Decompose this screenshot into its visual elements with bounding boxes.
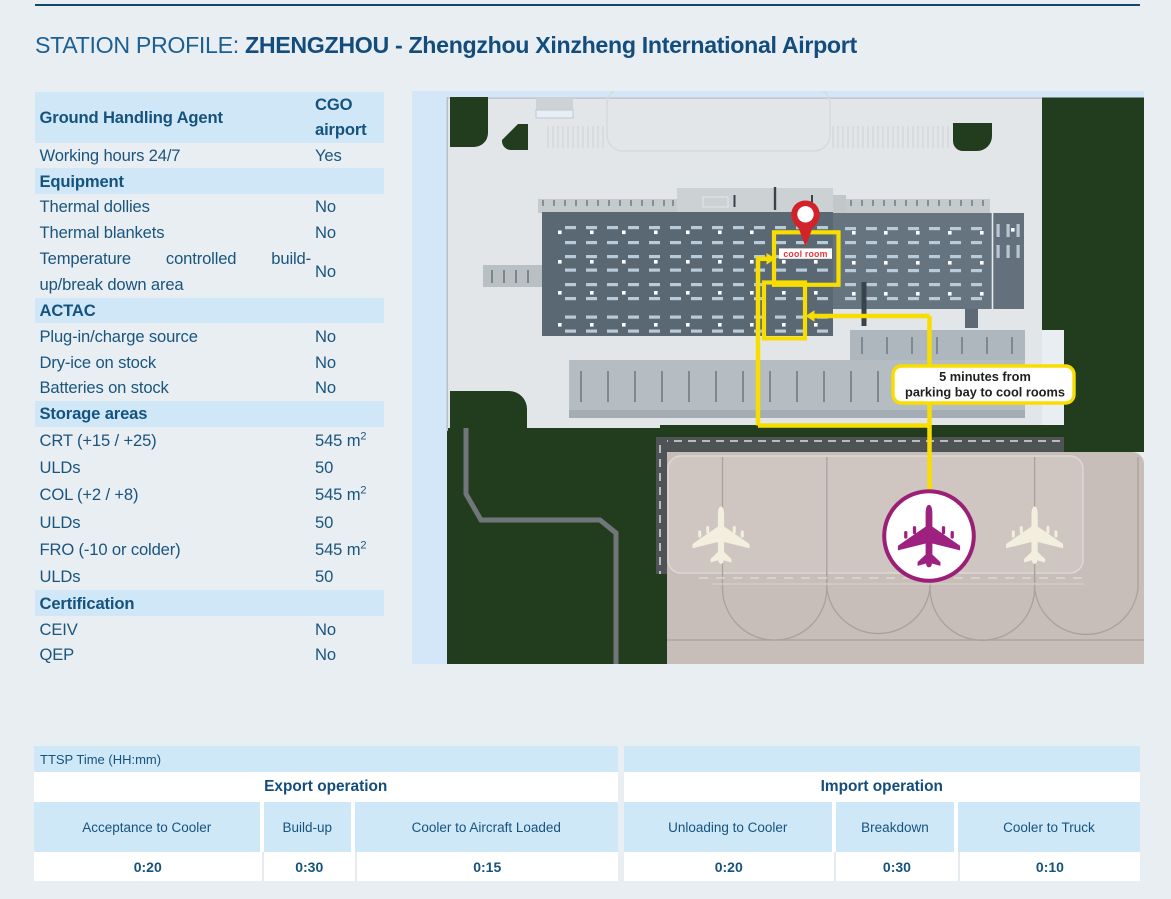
svg-text:5 minutes from: 5 minutes from <box>939 369 1031 384</box>
svg-text:parking bay to cool rooms: parking bay to cool rooms <box>905 385 1065 400</box>
svg-text:cool room: cool room <box>783 249 827 259</box>
